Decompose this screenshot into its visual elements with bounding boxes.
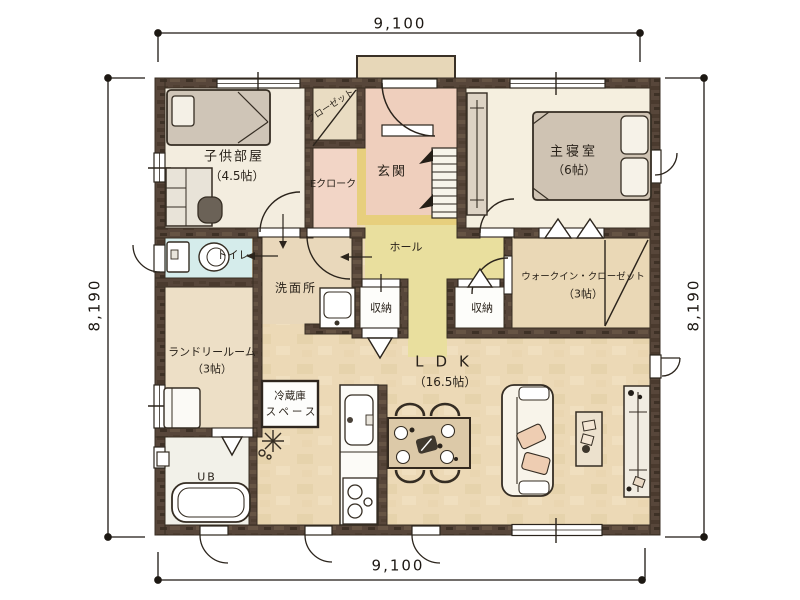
door-bottom-bath <box>200 526 228 563</box>
room-label-washroom: 洗面所 <box>275 282 317 294</box>
floor-plan: 9,100 9,100 8,190 8,190 子供部屋 （4.5帖） クローゼ… <box>0 0 800 600</box>
master-cabinet <box>467 93 487 215</box>
wall-closet-right <box>357 88 365 148</box>
door-master-right <box>650 150 677 183</box>
room-size-wic: （3帖） <box>563 289 603 300</box>
sofa <box>502 385 553 496</box>
coffee-table <box>576 412 602 466</box>
faucet-icon <box>347 417 353 423</box>
dimension-right-label: 8,190 <box>687 279 702 332</box>
room-label-ldk: LDK <box>415 355 481 370</box>
shower-fixture <box>157 452 169 466</box>
desk-chair <box>198 197 222 223</box>
room-label-master: 主寝室 <box>550 146 598 159</box>
door-washroom <box>307 228 350 237</box>
fridge-space-label-2: スペース <box>266 407 319 418</box>
washing-machine <box>164 388 200 428</box>
room-label-storage1: 収納 <box>370 303 392 314</box>
washbasin <box>320 288 355 328</box>
wall-kids-right <box>305 88 313 238</box>
room-wic-floor <box>512 238 650 328</box>
room-hall-floor-column <box>408 279 447 357</box>
wall-mid-left <box>155 228 258 238</box>
wall-master-bottom-a <box>457 228 480 238</box>
wall-laundry-right <box>253 238 262 437</box>
room-label-laundry: ランドリールーム <box>168 347 256 358</box>
room-label-kids: 子供部屋 <box>204 151 264 164</box>
pillow <box>621 158 648 196</box>
entrance-step-side <box>357 148 366 225</box>
dimension-left-label: 8,190 <box>88 279 103 332</box>
door-toilet-left <box>133 245 165 272</box>
door-bottom-kitchen <box>305 526 332 562</box>
wall-mid-stub <box>300 228 307 238</box>
kitchen-counter <box>340 385 378 525</box>
dimension-bottom-label: 9,100 <box>372 559 425 574</box>
wall-master-bottom-b <box>514 228 539 238</box>
door-kids <box>258 228 300 237</box>
stove <box>343 478 377 524</box>
room-size-kids: （4.5帖） <box>209 170 264 182</box>
door-master <box>480 228 514 237</box>
floor-plan-drawing <box>0 0 800 600</box>
entrance-porch <box>357 56 455 80</box>
room-label-wic: ウォークイン・クローゼット <box>521 272 645 282</box>
pillow <box>621 116 648 154</box>
room-label-entrance: 玄関 <box>377 166 407 179</box>
room-label-toilet: トイレ <box>217 250 250 261</box>
wall-wic-left-a <box>504 238 512 256</box>
fridge-space-label-1: 冷蔵庫 <box>274 391 306 402</box>
wall-mid-stub2 <box>350 228 365 238</box>
wall-toilet-bottom <box>155 278 262 287</box>
kids-bed <box>167 90 270 145</box>
room-label-bath: UB <box>197 472 217 483</box>
dimension-left <box>105 75 145 540</box>
room-label-storage2: 収納 <box>471 303 493 314</box>
tv-board <box>624 386 650 497</box>
room-size-master: （6帖） <box>552 164 596 176</box>
wall-wic-bottom <box>447 328 650 338</box>
door-wic <box>504 256 512 294</box>
wall-hall-washroom <box>352 238 362 279</box>
wall-kitchen <box>378 385 387 525</box>
wall-master-bottom-c <box>604 228 650 238</box>
room-size-ldk: （16.5帖） <box>414 376 477 388</box>
room-label-ecloak: Eクローク <box>310 180 356 190</box>
door-ldk-right <box>650 355 680 378</box>
wall-entrance-master <box>457 88 466 238</box>
room-label-hall: ホール <box>390 242 423 253</box>
dimension-top-label: 9,100 <box>374 17 427 32</box>
room-size-laundry: （3帖） <box>192 364 232 375</box>
refrigerator-space-box <box>262 381 318 427</box>
